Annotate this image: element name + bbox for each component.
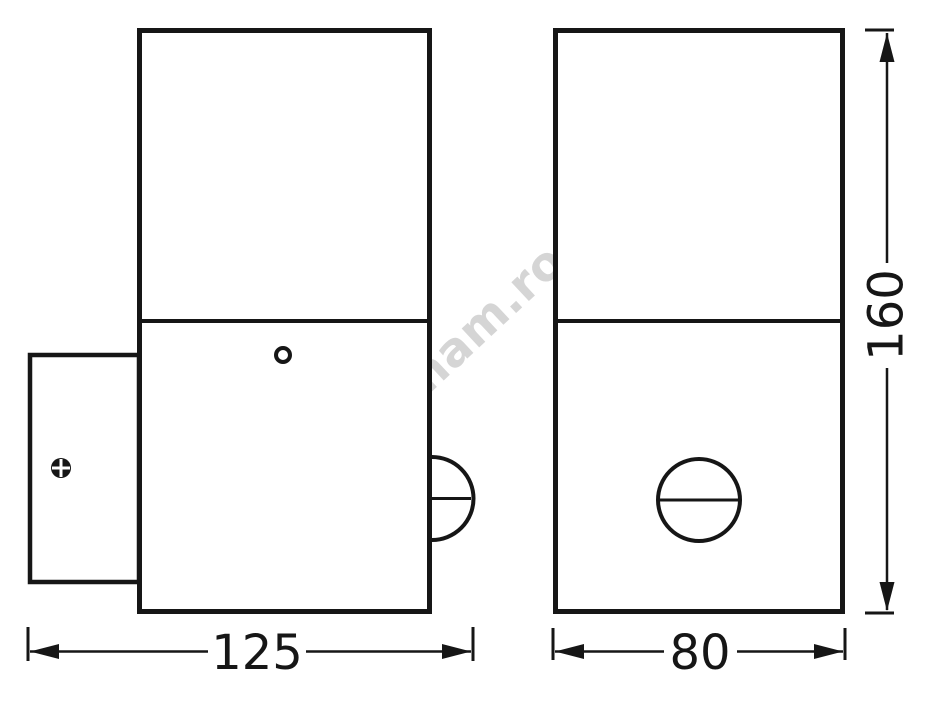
technical-drawing-page: luminam.ro 125 bbox=[0, 0, 946, 717]
dim-depth-value: 125 bbox=[211, 625, 303, 681]
side-view-mounting-plate bbox=[30, 355, 139, 582]
dim-height-arrow-up-icon bbox=[880, 33, 895, 62]
dim-height-arrow-down-icon bbox=[880, 582, 895, 611]
dim-width-value: 80 bbox=[669, 625, 730, 681]
dim-width-arrow-right-icon bbox=[814, 644, 843, 659]
fixture-dimension-drawing: luminam.ro 125 bbox=[0, 0, 946, 717]
side-view-pinhole bbox=[276, 348, 290, 362]
dim-depth-arrow-right-icon bbox=[442, 644, 471, 659]
dim-height-value: 160 bbox=[859, 269, 915, 361]
dim-depth-arrow-left-icon bbox=[30, 644, 59, 659]
dim-width-arrow-left-icon bbox=[555, 644, 584, 659]
